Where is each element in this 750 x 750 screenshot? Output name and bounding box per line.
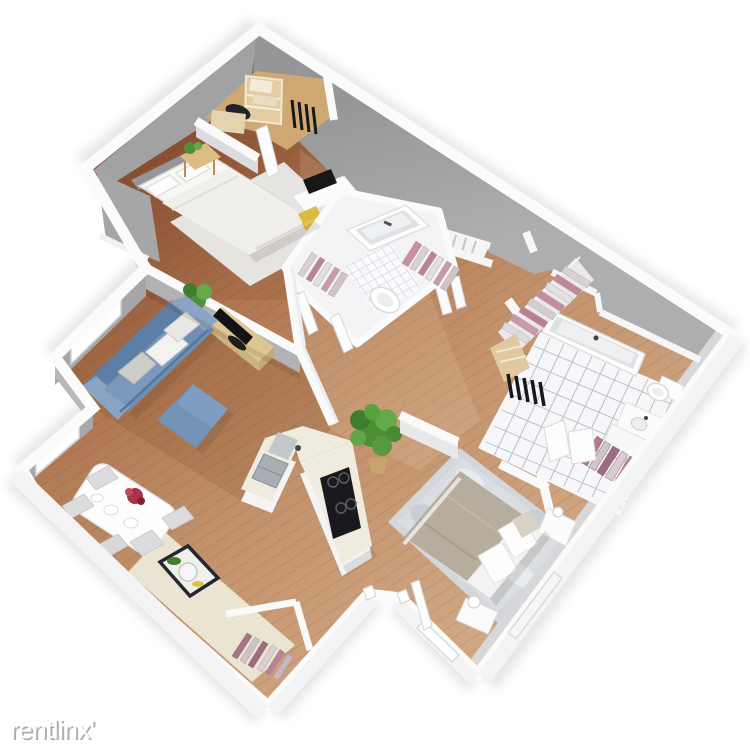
svg-text:rentlinxʹ: rentlinxʹ <box>10 714 94 744</box>
